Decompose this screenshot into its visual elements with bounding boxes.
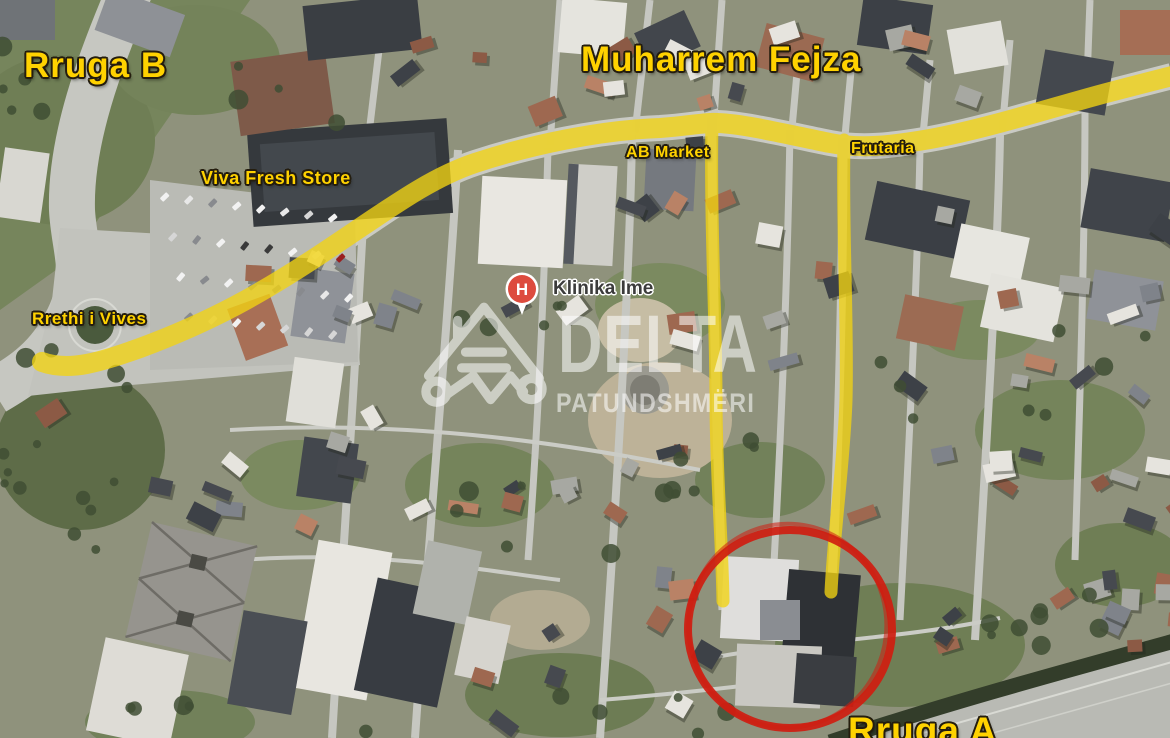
label-muharrem-fejza: Muharrem Fejza — [581, 42, 861, 77]
label-rrethi-i-vives: Rrethi i Vives — [32, 310, 146, 327]
label-klinika-ime: Klinika Ime — [553, 278, 653, 300]
label-frutaria: Frutaria — [851, 141, 915, 157]
map-image: H Rruga B Muharrem Fejza Viva Fresh Stor… — [0, 0, 1170, 738]
hospital-h-icon: H — [516, 280, 528, 299]
satellite-background — [0, 0, 1170, 738]
label-viva-fresh-store: Viva Fresh Store — [201, 169, 351, 187]
label-rruga-b: Rruga B — [24, 48, 167, 83]
label-ab-market: AB Market — [626, 145, 710, 161]
hospital-pin: H — [501, 269, 543, 319]
label-rruga-a: Rruga A — [848, 712, 998, 738]
